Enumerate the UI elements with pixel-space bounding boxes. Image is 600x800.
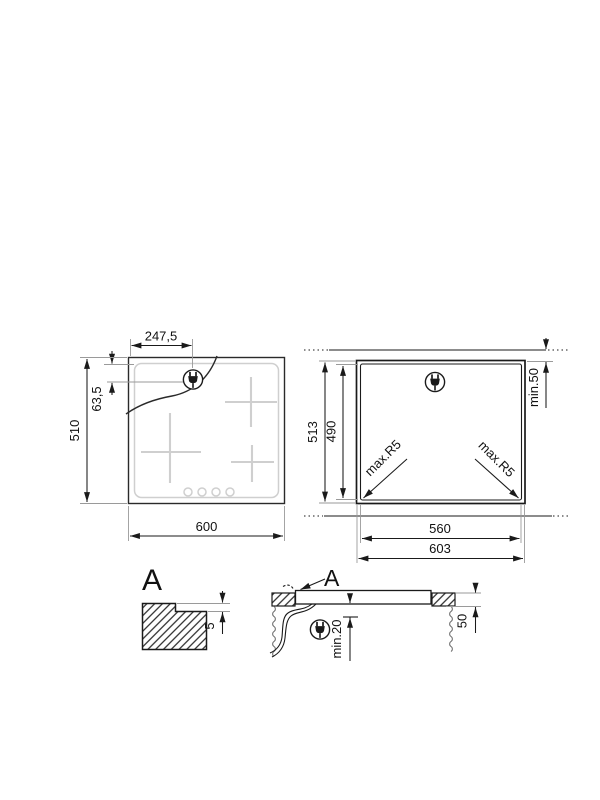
cabinet-side-right bbox=[450, 607, 453, 652]
control-dot bbox=[212, 488, 220, 496]
dim-label: 5 bbox=[202, 622, 217, 629]
cabinet-side-left bbox=[273, 607, 276, 657]
control-dot bbox=[184, 488, 192, 496]
detail-area-arc bbox=[283, 585, 294, 590]
power-cable bbox=[270, 604, 312, 653]
detail-ref-label: A bbox=[324, 565, 340, 591]
power-cable bbox=[272, 604, 316, 657]
dim-label: min.20 bbox=[329, 619, 344, 658]
dim-width: 600 bbox=[129, 506, 285, 541]
dim-cutout-depth: 490 bbox=[324, 365, 359, 500]
installation-drawing-page: 247,5 63,5 510 600 bbox=[0, 0, 600, 800]
dim-recess-depth: 50 bbox=[446, 583, 481, 633]
hob-body-section bbox=[296, 591, 432, 605]
dim-label: 513 bbox=[305, 421, 320, 443]
power-plug-icon bbox=[425, 372, 444, 391]
dim-rear-clearance: min.50 bbox=[526, 338, 553, 408]
control-dot bbox=[198, 488, 206, 496]
detail-leader-arrow bbox=[301, 579, 326, 590]
plan-view: 247,5 63,5 510 600 bbox=[67, 329, 285, 542]
power-plug-icon bbox=[310, 620, 329, 639]
worktop-rebate-section bbox=[143, 604, 207, 650]
dim-corner-radius-left: max.R5 bbox=[362, 437, 407, 498]
dim-label: 600 bbox=[196, 519, 218, 534]
dim-label: 50 bbox=[455, 614, 470, 628]
dim-label: 247,5 bbox=[145, 329, 178, 344]
detail-label: A bbox=[142, 564, 162, 597]
dim-label: 560 bbox=[429, 521, 451, 536]
technical-drawing: 247,5 63,5 510 600 bbox=[0, 0, 600, 800]
dim-label: 63,5 bbox=[89, 386, 104, 411]
dim-label: min.50 bbox=[526, 368, 541, 407]
dim-cutout-width: 560 bbox=[361, 505, 522, 543]
cutout-view: 513 490 min.50 max.R5 max.R5 bbox=[304, 338, 571, 563]
dim-clearance-below: min.20 bbox=[329, 595, 358, 661]
dim-depth: 510 bbox=[67, 358, 127, 504]
section-view: A min.20 50 bbox=[270, 565, 481, 661]
dim-label: max.R5 bbox=[476, 438, 518, 480]
dim-label: max.R5 bbox=[362, 437, 404, 479]
control-dot bbox=[226, 488, 234, 496]
detail-a-view: A 5 bbox=[142, 564, 230, 650]
dim-corner-radius-right: max.R5 bbox=[475, 438, 519, 498]
glass-edge-outline bbox=[135, 364, 279, 498]
power-plug-icon bbox=[183, 370, 202, 389]
dim-label: 603 bbox=[429, 541, 451, 556]
dim-label: 510 bbox=[67, 420, 82, 442]
worktop-section-right bbox=[432, 593, 455, 606]
dim-label: 490 bbox=[324, 421, 339, 443]
worktop-section-left bbox=[272, 593, 295, 606]
dim-plug-offset-x: 247,5 bbox=[131, 329, 193, 369]
